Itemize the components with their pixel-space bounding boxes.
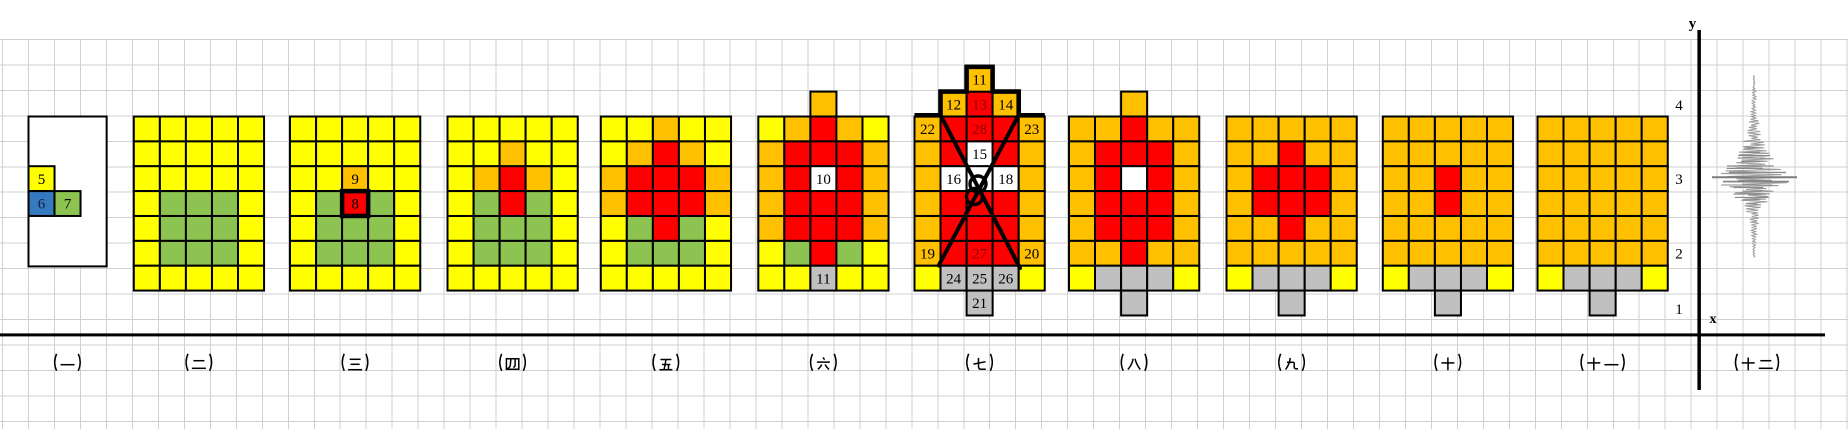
svg-text:27: 27 — [972, 247, 988, 263]
svg-text:6: 6 — [38, 197, 46, 213]
svg-text:11: 11 — [816, 271, 830, 287]
svg-text:23: 23 — [1024, 122, 1039, 138]
svg-text:7: 7 — [64, 197, 72, 213]
svg-text:24: 24 — [946, 271, 962, 287]
svg-text:10: 10 — [816, 172, 831, 188]
svg-text:9: 9 — [351, 172, 359, 188]
svg-text:2: 2 — [1675, 247, 1683, 263]
svg-text:y: y — [1689, 16, 1697, 32]
svg-text:x: x — [1710, 312, 1717, 327]
svg-text:25: 25 — [972, 271, 987, 287]
svg-text:12: 12 — [946, 97, 961, 113]
svg-text:26: 26 — [998, 271, 1014, 287]
svg-text:14: 14 — [998, 97, 1014, 113]
svg-text:5: 5 — [38, 172, 46, 188]
svg-text:13: 13 — [972, 97, 987, 113]
svg-text:18: 18 — [998, 172, 1013, 188]
svg-text:20: 20 — [1024, 247, 1039, 263]
svg-text:21: 21 — [972, 296, 987, 312]
svg-text:15: 15 — [972, 147, 987, 163]
svg-text:19: 19 — [920, 247, 935, 263]
svg-text:4: 4 — [1675, 98, 1683, 114]
svg-text:22: 22 — [920, 122, 935, 138]
svg-text:1: 1 — [1675, 302, 1683, 318]
svg-text:8: 8 — [351, 197, 359, 213]
svg-text:28: 28 — [972, 122, 987, 138]
svg-text:16: 16 — [946, 172, 962, 188]
svg-text:3: 3 — [1675, 172, 1683, 188]
svg-text:11: 11 — [972, 72, 986, 88]
